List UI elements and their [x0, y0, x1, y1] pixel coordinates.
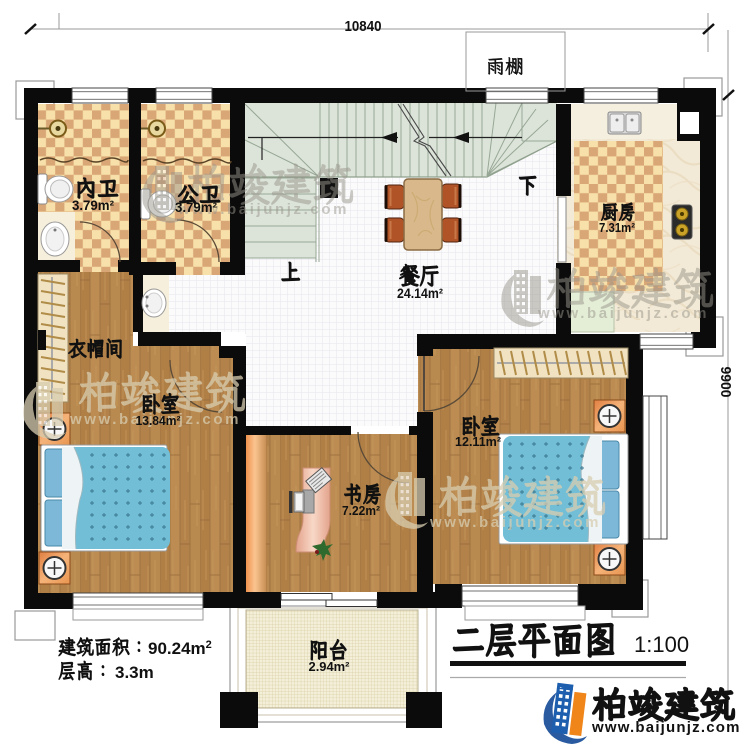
- svg-text:www.baijunjz.com: www.baijunjz.com: [591, 719, 741, 736]
- svg-text:1:100: 1:100: [634, 632, 689, 657]
- svg-text:3.79m²: 3.79m²: [175, 199, 217, 215]
- svg-text:www.baijunjz.com: www.baijunjz.com: [537, 305, 709, 322]
- svg-text:90.24m2: 90.24m2: [148, 639, 212, 658]
- svg-text:10840: 10840: [345, 18, 382, 35]
- svg-text:12.11m²: 12.11m²: [455, 434, 502, 449]
- svg-text:7.31m²: 7.31m²: [599, 220, 636, 235]
- svg-text:7.22m²: 7.22m²: [342, 503, 381, 518]
- svg-text:9900: 9900: [717, 367, 734, 398]
- svg-text:24.14m²: 24.14m²: [397, 286, 443, 301]
- svg-text:2.94m²: 2.94m²: [309, 659, 351, 674]
- svg-text:13.84m²: 13.84m²: [136, 413, 182, 428]
- svg-text:www.baijunjz.com: www.baijunjz.com: [429, 514, 601, 531]
- svg-text:3.79m²: 3.79m²: [72, 197, 114, 213]
- svg-text:3.3m: 3.3m: [115, 663, 154, 682]
